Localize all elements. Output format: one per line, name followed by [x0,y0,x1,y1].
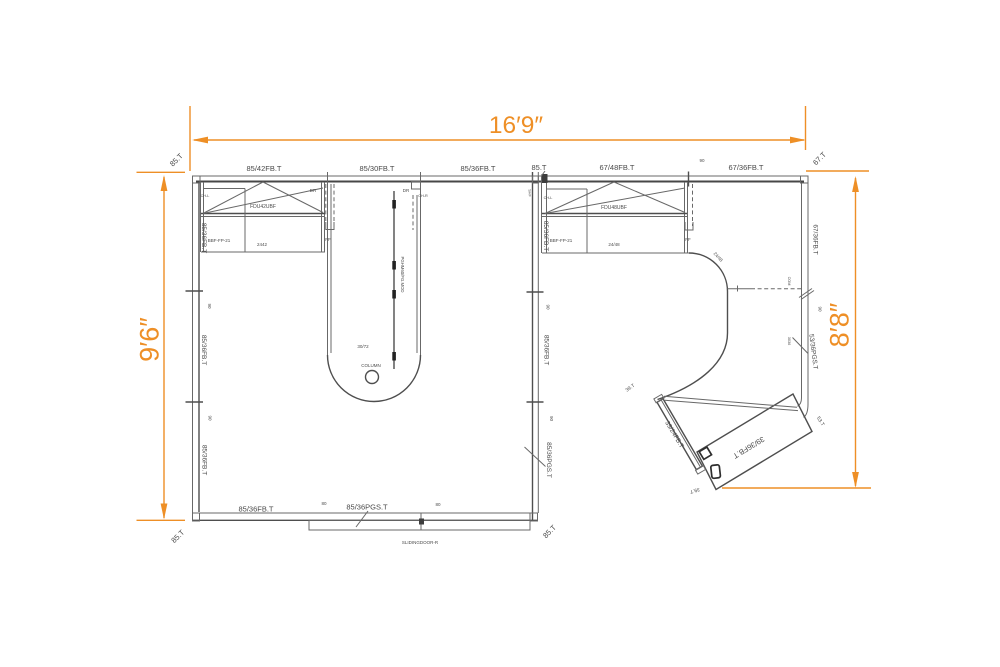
svg-text:CH-L: CH-L [201,194,210,198]
svg-text:16′9″: 16′9″ [489,112,543,139]
svg-text:90: 90 [207,303,212,309]
svg-text:85/36FB.T: 85/36FB.T [542,221,549,251]
svg-text:2442: 2442 [257,242,268,247]
svg-text:85/30FB.T: 85/30FB.T [359,164,394,173]
svg-text:85.T: 85.T [531,163,546,172]
svg-text:85/36FB.T: 85/36FB.T [201,445,208,475]
svg-text:85/36PGS.T: 85/36PGS.T [346,503,388,512]
svg-text:24/48: 24/48 [608,242,620,247]
svg-text:FF: FF [325,237,331,242]
svg-text:30/72: 30/72 [357,344,369,349]
svg-text:85/36FB.T: 85/36FB.T [460,164,495,173]
svg-text:CH-R: CH-R [418,194,428,198]
svg-text:COLUMN: COLUMN [361,363,381,368]
svg-text:85/36FB.T: 85/36FB.T [200,223,207,253]
svg-text:90: 90 [208,415,213,421]
svg-text:90: 90 [546,304,551,310]
svg-text:CH-L: CH-L [544,196,553,200]
svg-text:85/42FB.T: 85/42FB.T [246,164,281,173]
svg-text:SHF: SHF [528,189,532,197]
svg-text:BBF-FP-21: BBF-FP-21 [208,238,231,243]
svg-text:85/36PGS.T: 85/36PGS.T [545,442,552,478]
svg-text:SLIDINGDOOR-R: SLIDINGDOOR-R [402,540,439,545]
svg-text:67/48FB.T: 67/48FB.T [599,163,634,172]
svg-text:80: 80 [435,502,441,507]
svg-text:DR: DR [310,188,317,193]
svg-text:FDU42UBF: FDU42UBF [250,204,276,210]
svg-text:90: 90 [699,158,705,163]
svg-text:BBF-FP-21: BBF-FP-21 [550,238,573,243]
svg-text:9′6″: 9′6″ [135,317,165,362]
svg-text:85/36FB.T: 85/36FB.T [543,335,550,365]
svg-text:FF: FF [685,237,691,242]
svg-text:85/36FB.T: 85/36FB.T [200,335,207,365]
svg-text:67/36FB.T: 67/36FB.T [728,163,763,172]
svg-text:FDU48UBF: FDU48UBF [601,205,627,211]
svg-text:90: 90 [817,306,822,312]
svg-text:3036: 3036 [787,337,791,345]
svg-text:8′8″: 8′8″ [825,302,855,347]
svg-text:PGHM60/FG.MOD: PGHM60/FG.MOD [400,256,405,292]
svg-text:67/36FB.T: 67/36FB.T [812,224,819,254]
svg-text:COM: COM [787,277,791,286]
svg-text:90: 90 [549,416,554,422]
svg-text:80: 80 [321,501,327,506]
svg-text:85/36FB.T: 85/36FB.T [238,505,273,514]
svg-text:DR: DR [403,188,410,193]
